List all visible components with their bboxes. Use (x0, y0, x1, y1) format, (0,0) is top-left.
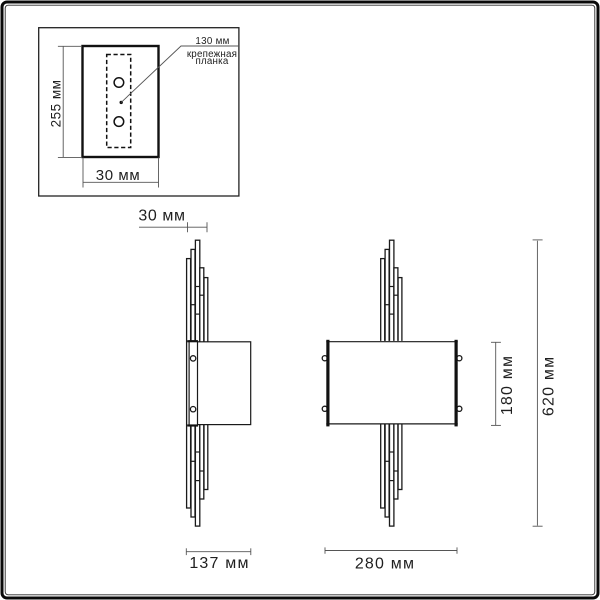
svg-text:180 мм: 180 мм (499, 355, 516, 415)
svg-text:280 мм: 280 мм (355, 556, 415, 573)
svg-text:620 мм: 620 мм (541, 356, 558, 416)
svg-text:137 мм: 137 мм (189, 555, 249, 572)
svg-text:130 мм: 130 мм (195, 36, 229, 47)
svg-text:255 мм: 255 мм (49, 80, 64, 128)
svg-text:30 мм: 30 мм (96, 167, 140, 184)
svg-text:планка: планка (195, 56, 228, 67)
svg-text:30 мм: 30 мм (138, 208, 185, 225)
